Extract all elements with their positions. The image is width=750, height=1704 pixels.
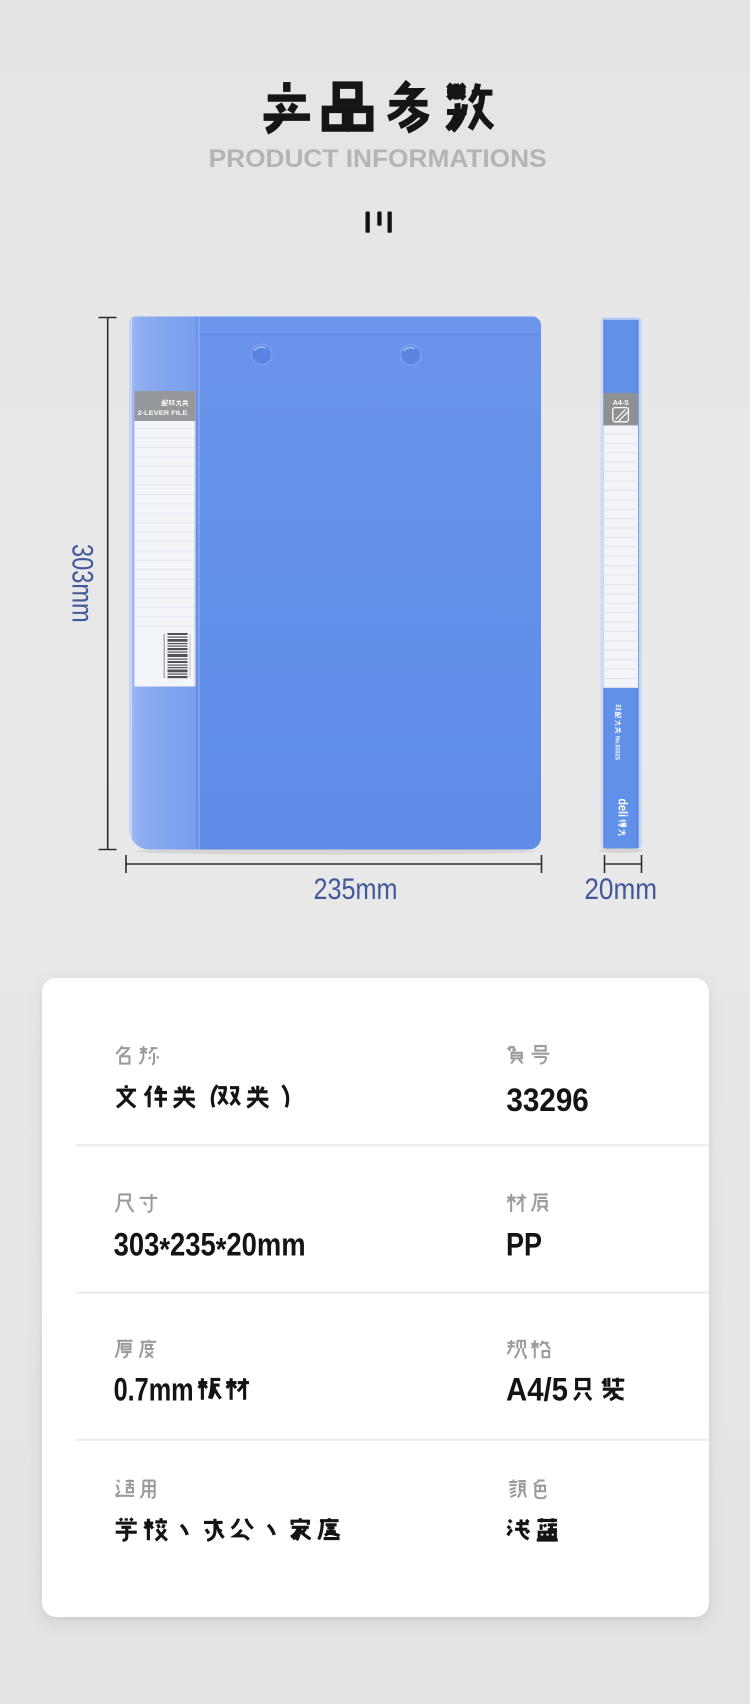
svg-text:deli: deli xyxy=(615,799,629,818)
svg-text:2-LEVER FILE: 2-LEVER FILE xyxy=(138,410,189,417)
svg-text:PRODUCT INFORMATIONS: PRODUCT INFORMATIONS xyxy=(209,145,547,173)
svg-text:235mm: 235mm xyxy=(314,873,398,906)
svg-text:303mm: 303mm xyxy=(66,544,99,623)
svg-text:20mm: 20mm xyxy=(584,873,657,906)
svg-text:303*235*20mm: 303*235*20mm xyxy=(114,1227,306,1268)
svg-text:33296: 33296 xyxy=(506,1082,588,1118)
svg-text:No.5302S: No.5302S xyxy=(613,736,620,761)
svg-text:0.7mm: 0.7mm xyxy=(114,1372,194,1408)
svg-text:A4/5: A4/5 xyxy=(506,1372,568,1408)
svg-text:A4-S: A4-S xyxy=(613,400,629,407)
svg-text:PP: PP xyxy=(506,1227,542,1263)
